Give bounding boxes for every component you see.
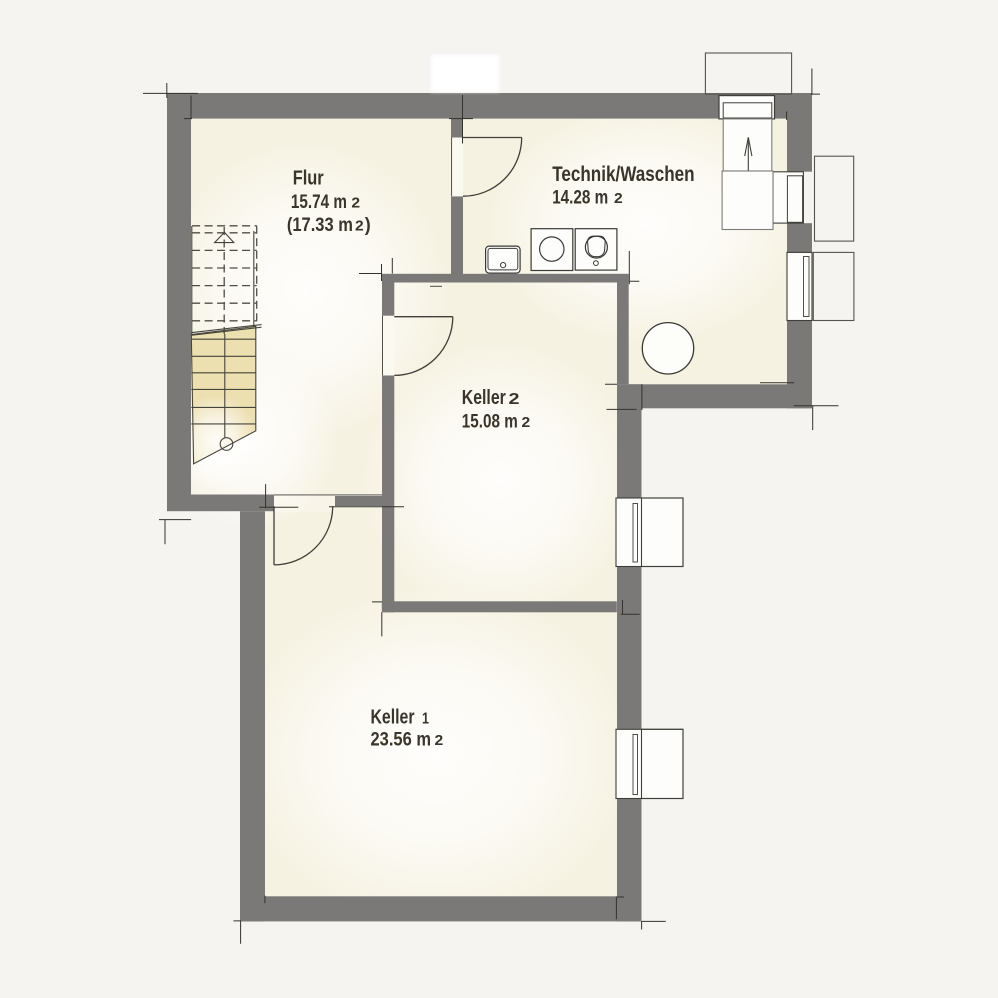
svg-text:2: 2 bbox=[435, 732, 444, 749]
svg-text:2: 2 bbox=[355, 218, 364, 235]
svg-text:Flur: Flur bbox=[293, 167, 324, 190]
svg-text:2: 2 bbox=[522, 414, 531, 431]
svg-text:2: 2 bbox=[351, 195, 360, 212]
svg-text:Keller: Keller bbox=[371, 707, 415, 729]
svg-text:14.28 m: 14.28 m bbox=[552, 187, 608, 209]
svg-text:(17.33 m: (17.33 m bbox=[287, 214, 353, 236]
svg-text:Technik/Waschen: Technik/Waschen bbox=[552, 163, 694, 186]
svg-text:Keller: Keller bbox=[462, 387, 506, 409]
svg-text:1: 1 bbox=[422, 711, 429, 728]
svg-text:15.08 m: 15.08 m bbox=[462, 411, 518, 432]
svg-text:2: 2 bbox=[509, 391, 520, 408]
svg-text:15.74 m: 15.74 m bbox=[291, 191, 347, 213]
svg-text:): ) bbox=[365, 214, 371, 236]
svg-text:2: 2 bbox=[614, 190, 623, 207]
svg-text:23.56 m: 23.56 m bbox=[371, 729, 432, 751]
